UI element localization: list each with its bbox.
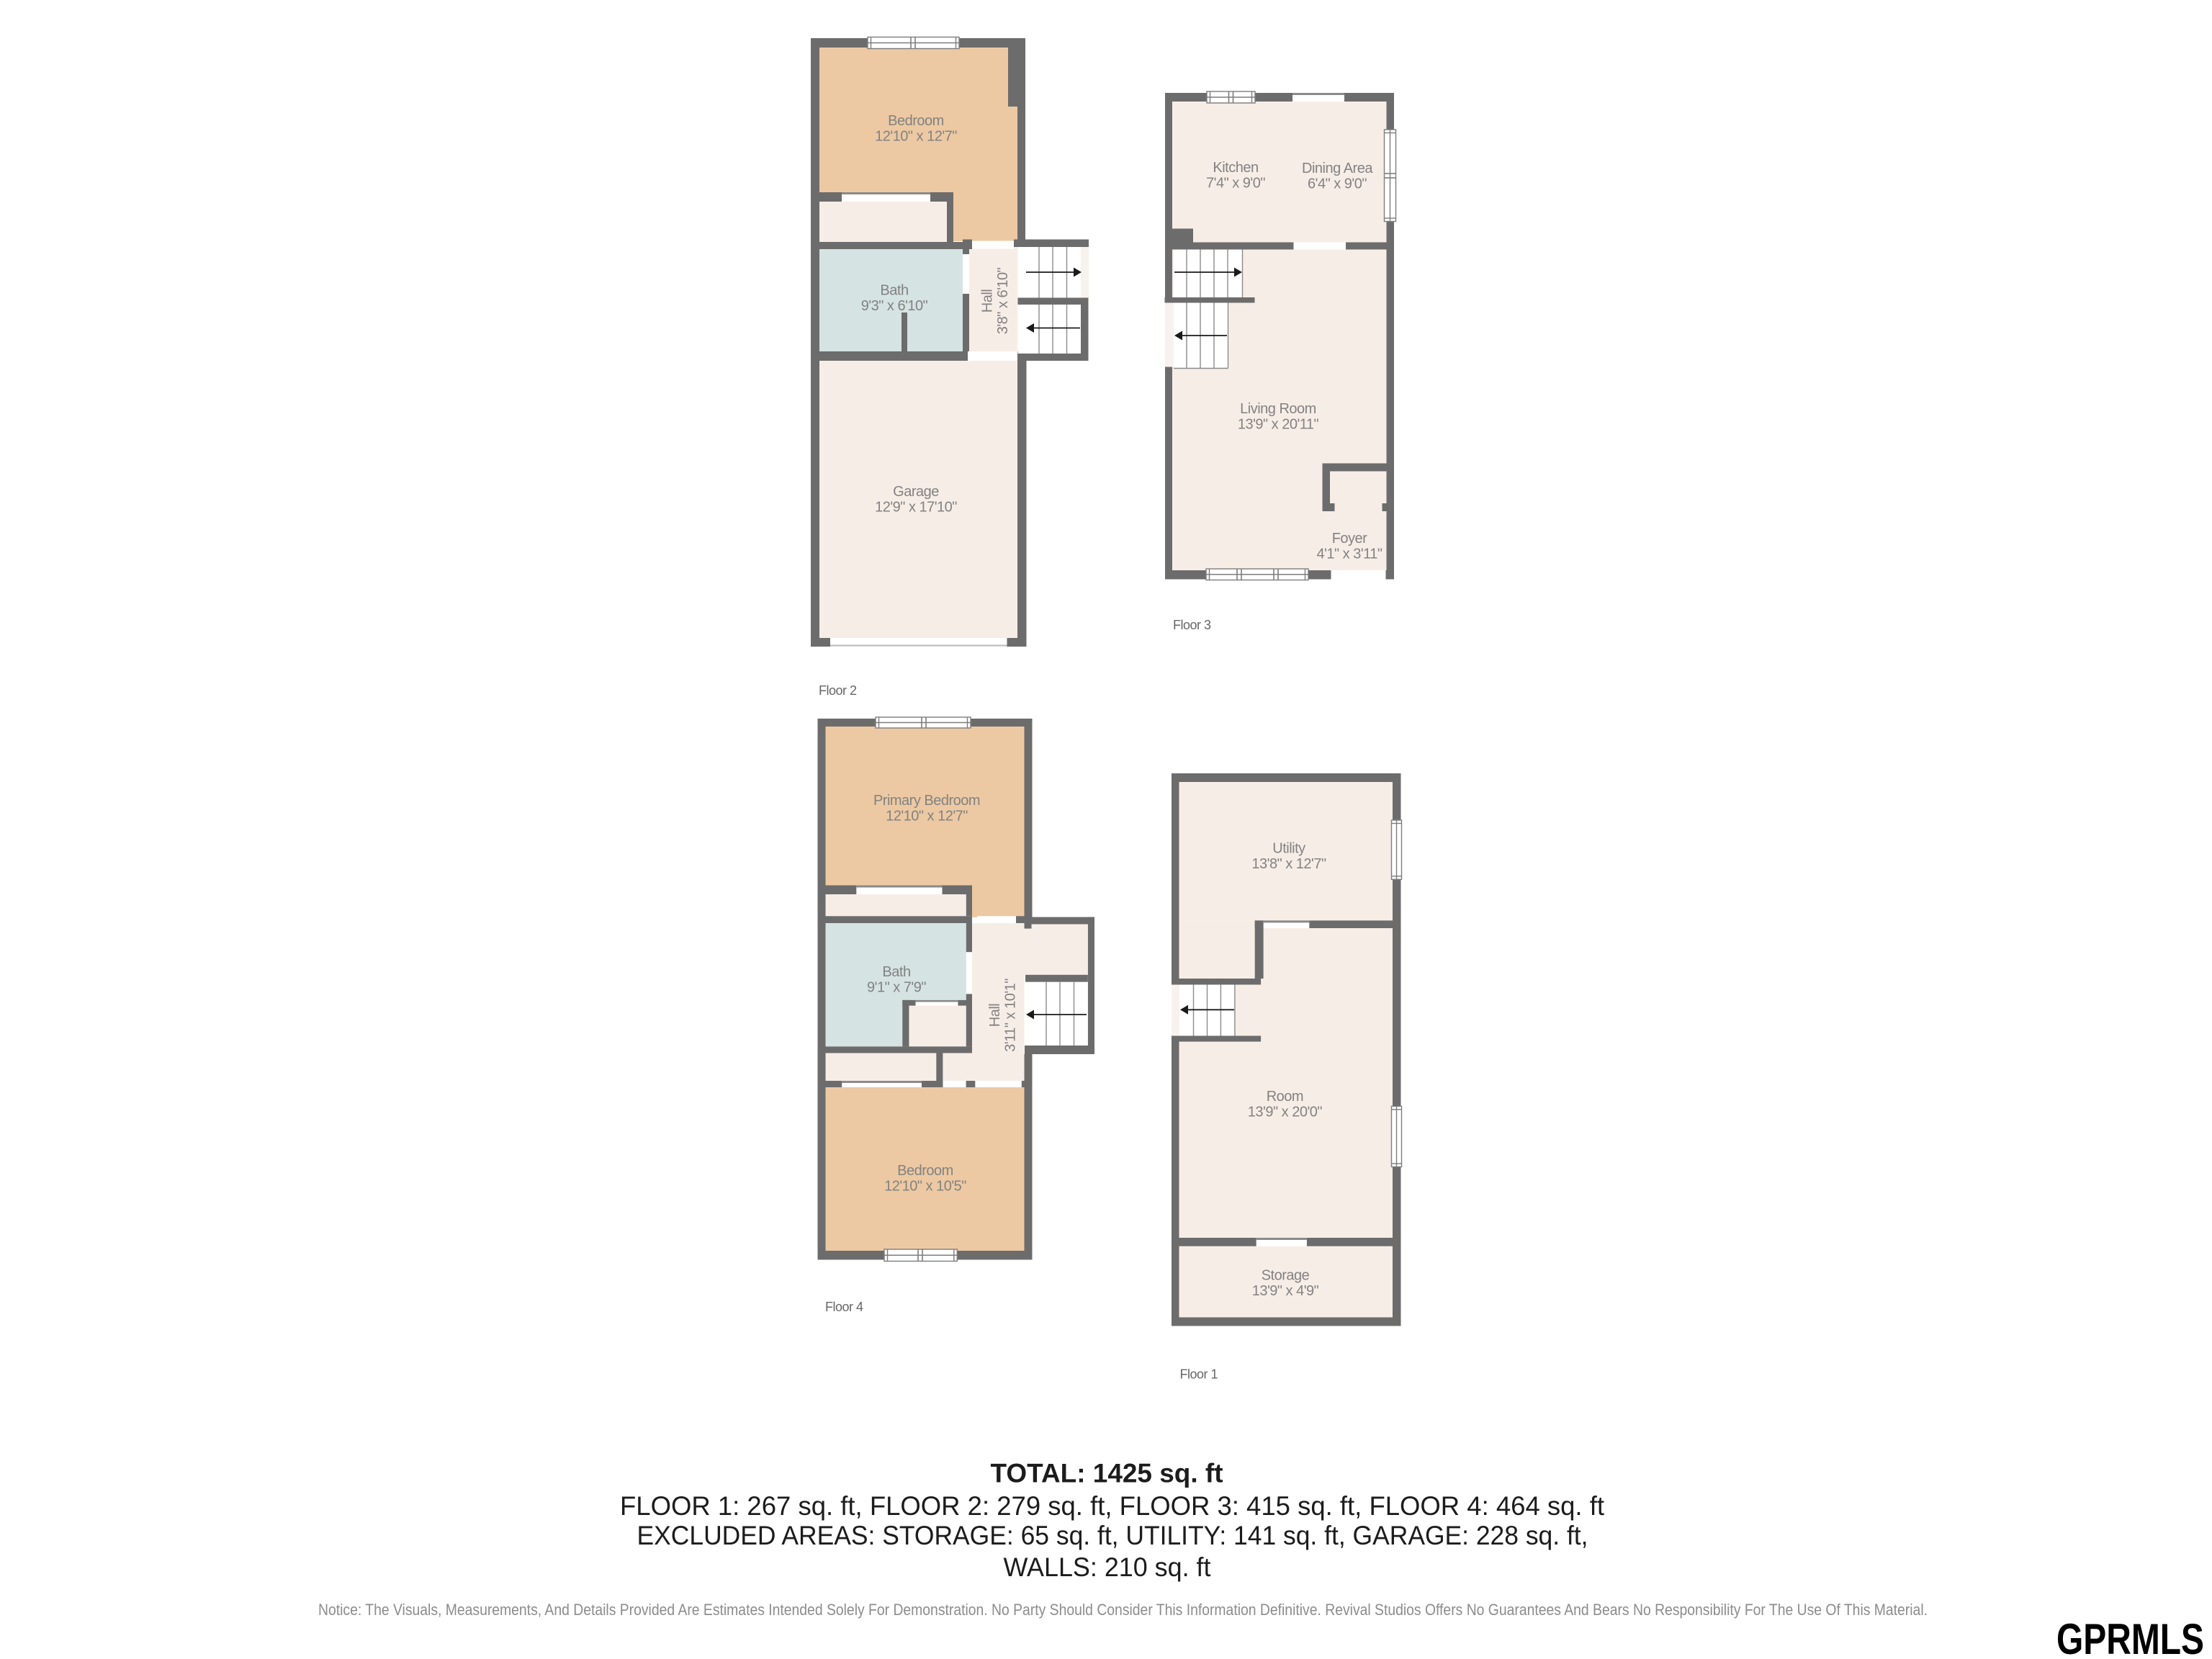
svg-text:EXCLUDED AREAS: STORAGE: 65 sq: EXCLUDED AREAS: STORAGE: 65 sq. ft, UTIL… <box>637 1521 1588 1550</box>
svg-text:Bath: Bath <box>882 964 910 980</box>
svg-text:Dining Area: Dining Area <box>1302 161 1373 176</box>
svg-text:3'8" x 6'10": 3'8" x 6'10" <box>995 267 1011 334</box>
svg-text:FLOOR 1: 267 sq. ft, FLOOR 2:: FLOOR 1: 267 sq. ft, FLOOR 2: 279 sq. ft… <box>620 1491 1605 1521</box>
svg-text:Foyer: Foyer <box>1332 531 1367 547</box>
svg-text:Kitchen: Kitchen <box>1213 160 1258 176</box>
svg-text:4'1" x 3'11": 4'1" x 3'11" <box>1316 547 1382 562</box>
svg-text:Bedroom: Bedroom <box>888 113 944 129</box>
svg-text:7'4" x 9'0": 7'4" x 9'0" <box>1206 176 1265 192</box>
svg-text:13'9" x 4'9": 13'9" x 4'9" <box>1252 1283 1319 1299</box>
svg-text:Bedroom: Bedroom <box>897 1163 953 1179</box>
svg-text:13'8" x 12'7": 13'8" x 12'7" <box>1251 856 1326 872</box>
svg-text:12'10" x 10'5": 12'10" x 10'5" <box>884 1179 966 1195</box>
svg-text:12'10" x 12'7": 12'10" x 12'7" <box>875 129 957 145</box>
svg-text:Bath: Bath <box>880 283 908 299</box>
svg-text:Utility: Utility <box>1272 840 1305 856</box>
svg-text:Hall: Hall <box>980 289 996 313</box>
svg-text:13'9" x 20'11": 13'9" x 20'11" <box>1238 417 1319 433</box>
svg-text:Notice: The Visuals, Measureme: Notice: The Visuals, Measurements, And D… <box>318 1601 1928 1619</box>
svg-text:9'1" x 7'9": 9'1" x 7'9" <box>867 980 926 996</box>
svg-text:Living Room: Living Room <box>1240 401 1316 417</box>
svg-text:TOTAL: 1425 sq. ft: TOTAL: 1425 sq. ft <box>991 1459 1223 1488</box>
svg-text:Primary Bedroom: Primary Bedroom <box>873 793 980 809</box>
svg-text:12'9" x 17'10": 12'9" x 17'10" <box>875 500 957 516</box>
svg-text:Storage: Storage <box>1262 1268 1310 1284</box>
svg-text:Floor 1: Floor 1 <box>1180 1367 1218 1382</box>
svg-text:12'10" x 12'7": 12'10" x 12'7" <box>886 809 968 824</box>
svg-text:3'11" x 10'1": 3'11" x 10'1" <box>1003 979 1019 1052</box>
svg-text:9'3" x 6'10": 9'3" x 6'10" <box>861 298 928 314</box>
svg-text:Floor 3: Floor 3 <box>1173 618 1211 632</box>
svg-text:6'4" x 9'0": 6'4" x 9'0" <box>1308 176 1367 192</box>
svg-text:GPRMLS: GPRMLS <box>2056 1615 2204 1659</box>
svg-text:13'9" x 20'0": 13'9" x 20'0" <box>1248 1104 1323 1120</box>
svg-text:Room: Room <box>1267 1089 1303 1105</box>
svg-text:Floor 2: Floor 2 <box>819 683 857 698</box>
svg-text:Hall: Hall <box>987 1004 1003 1028</box>
svg-text:WALLS: 210 sq. ft: WALLS: 210 sq. ft <box>1004 1552 1212 1582</box>
svg-text:Garage: Garage <box>893 484 939 500</box>
svg-text:Floor 4: Floor 4 <box>825 1300 863 1314</box>
